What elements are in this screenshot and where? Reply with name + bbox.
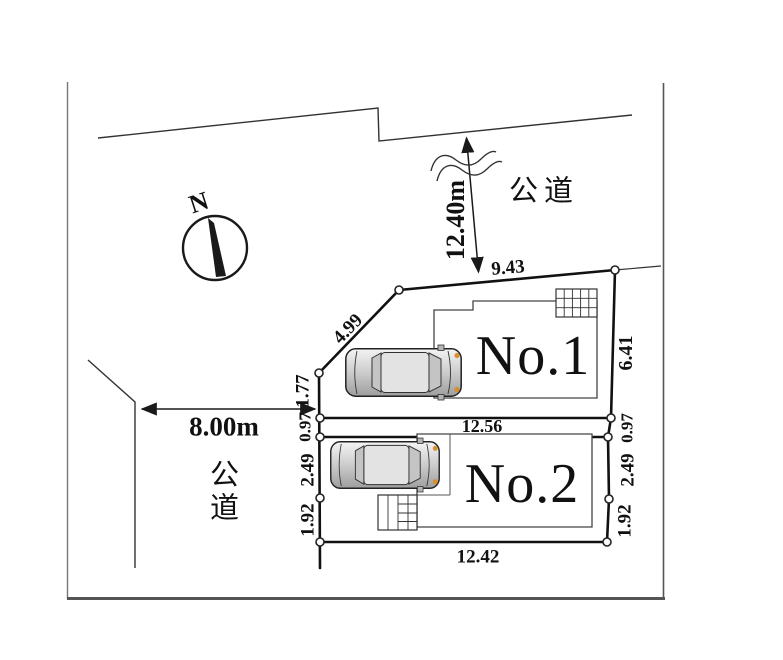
- boundary-extension-line: [615, 266, 661, 270]
- dim-lot2-right-middle: 2.49: [619, 453, 638, 486]
- entrance-steps-no2: [378, 495, 417, 530]
- car-top-view-icon: [346, 345, 461, 400]
- dim-lot2-right-lower: 1.92: [616, 504, 635, 537]
- balcony-grid-no1: [556, 289, 597, 317]
- road-width-top: 12.40m: [443, 180, 469, 260]
- dim-lot2-top: 12.56: [462, 417, 503, 435]
- dim-lot2-left-lower: 1.92: [299, 503, 318, 536]
- road-name-left: 公道: [207, 459, 236, 525]
- dim-lot2-right-upper: 0.97: [619, 413, 636, 443]
- dim-lot2-left-upper: 0.97: [297, 412, 314, 442]
- dim-lot1-top: 9.43: [491, 257, 526, 279]
- lot1-name: No.1: [476, 328, 590, 384]
- road-name-top: 公道: [509, 178, 579, 207]
- left-road-edge-line: [88, 360, 135, 568]
- lot2-name: No.2: [465, 456, 579, 512]
- dim-lot1-left: 1.77: [294, 374, 313, 407]
- dim-lot1-right: 6.41: [616, 336, 636, 371]
- wavy-break-icon: [431, 151, 502, 181]
- north-compass-icon: [183, 216, 247, 280]
- dim-lot2-left-middle: 2.49: [299, 453, 318, 486]
- top-road-edge-line: [98, 108, 632, 141]
- road-width-left: 8.00m: [189, 414, 259, 441]
- site-plan: N 公道 12.40m 9.43 4.99 1.77 6.41 No.1 0.9…: [0, 0, 783, 660]
- site-plan-linework: [0, 0, 783, 660]
- dim-lot2-bottom: 12.42: [457, 548, 500, 567]
- car-top-view-icon: [331, 438, 439, 492]
